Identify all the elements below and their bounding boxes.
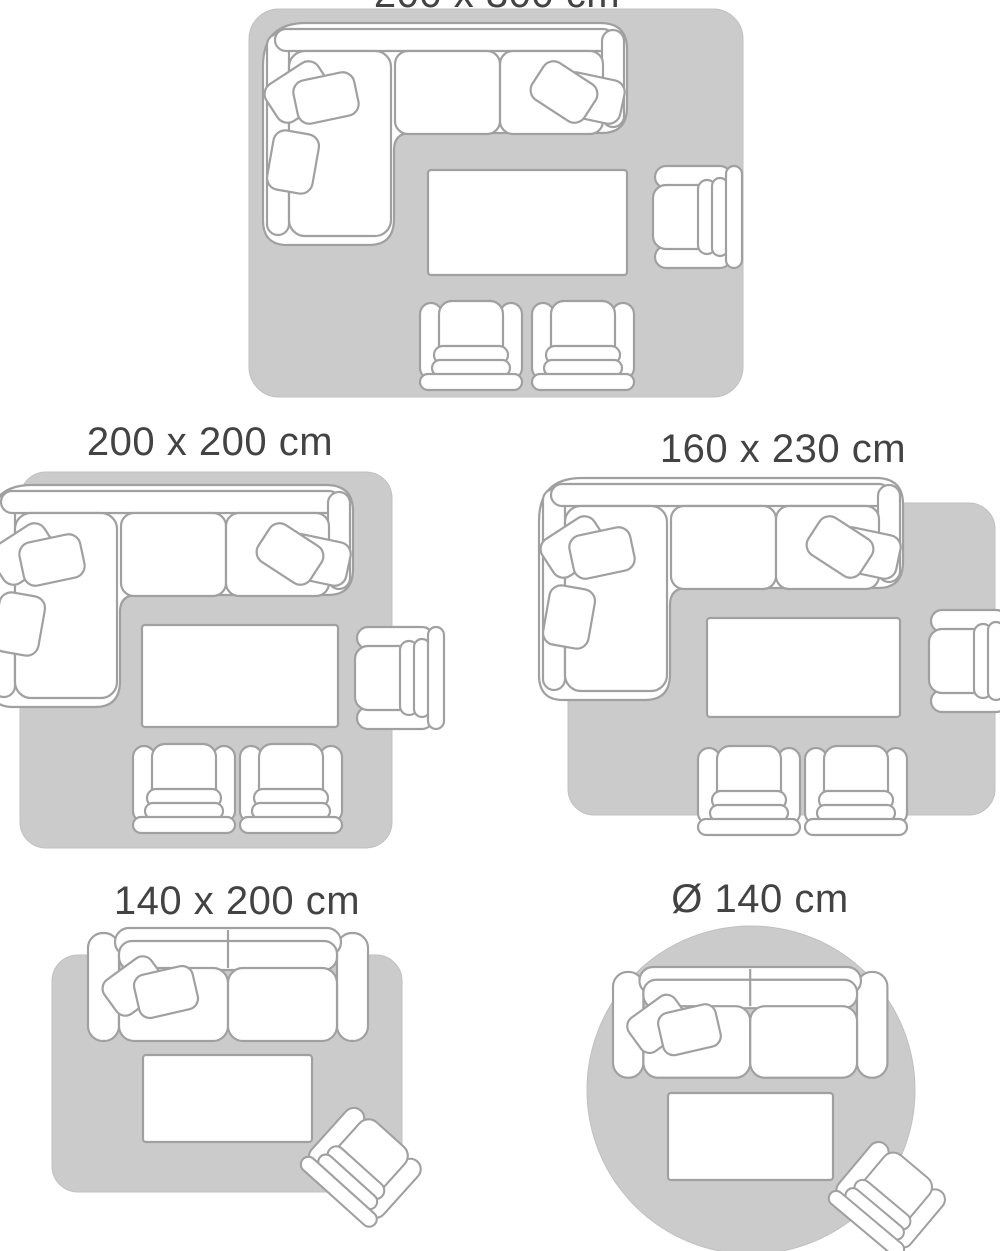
size-label-200x300: 200 x 300 cm [297, 0, 697, 14]
two-seat-sofa [88, 928, 368, 1041]
scene-140x200 [52, 928, 426, 1230]
coffee-table [428, 170, 627, 275]
size-label-140x200: 140 x 200 cm [37, 881, 437, 921]
rug-layout-illustrations [0, 0, 1000, 1251]
armchair-side [653, 166, 742, 268]
armchair [805, 746, 907, 835]
armchair [240, 744, 342, 833]
two-seat-sofa [613, 967, 887, 1078]
armchair [420, 301, 522, 390]
armchair-side [355, 627, 444, 729]
armchair [133, 744, 235, 833]
coffee-table [707, 618, 900, 717]
scene-200x200 [0, 472, 444, 848]
coffee-table [142, 625, 338, 727]
coffee-table [668, 1093, 833, 1180]
scene-round-140 [587, 926, 950, 1251]
size-label-200x200: 200 x 200 cm [10, 422, 410, 462]
armchair [698, 746, 800, 835]
scene-200x300 [249, 9, 743, 397]
armchair-side [929, 610, 1000, 712]
scene-160x230 [536, 478, 1000, 835]
coffee-table [143, 1055, 312, 1142]
armchair [532, 301, 634, 390]
rug-size-guide: 200 x 300 cm 200 x 200 cm 160 x 230 cm 1… [0, 0, 1000, 1251]
size-label-160x230: 160 x 230 cm [583, 429, 983, 469]
size-label-round-140: Ø 140 cm [560, 879, 960, 919]
